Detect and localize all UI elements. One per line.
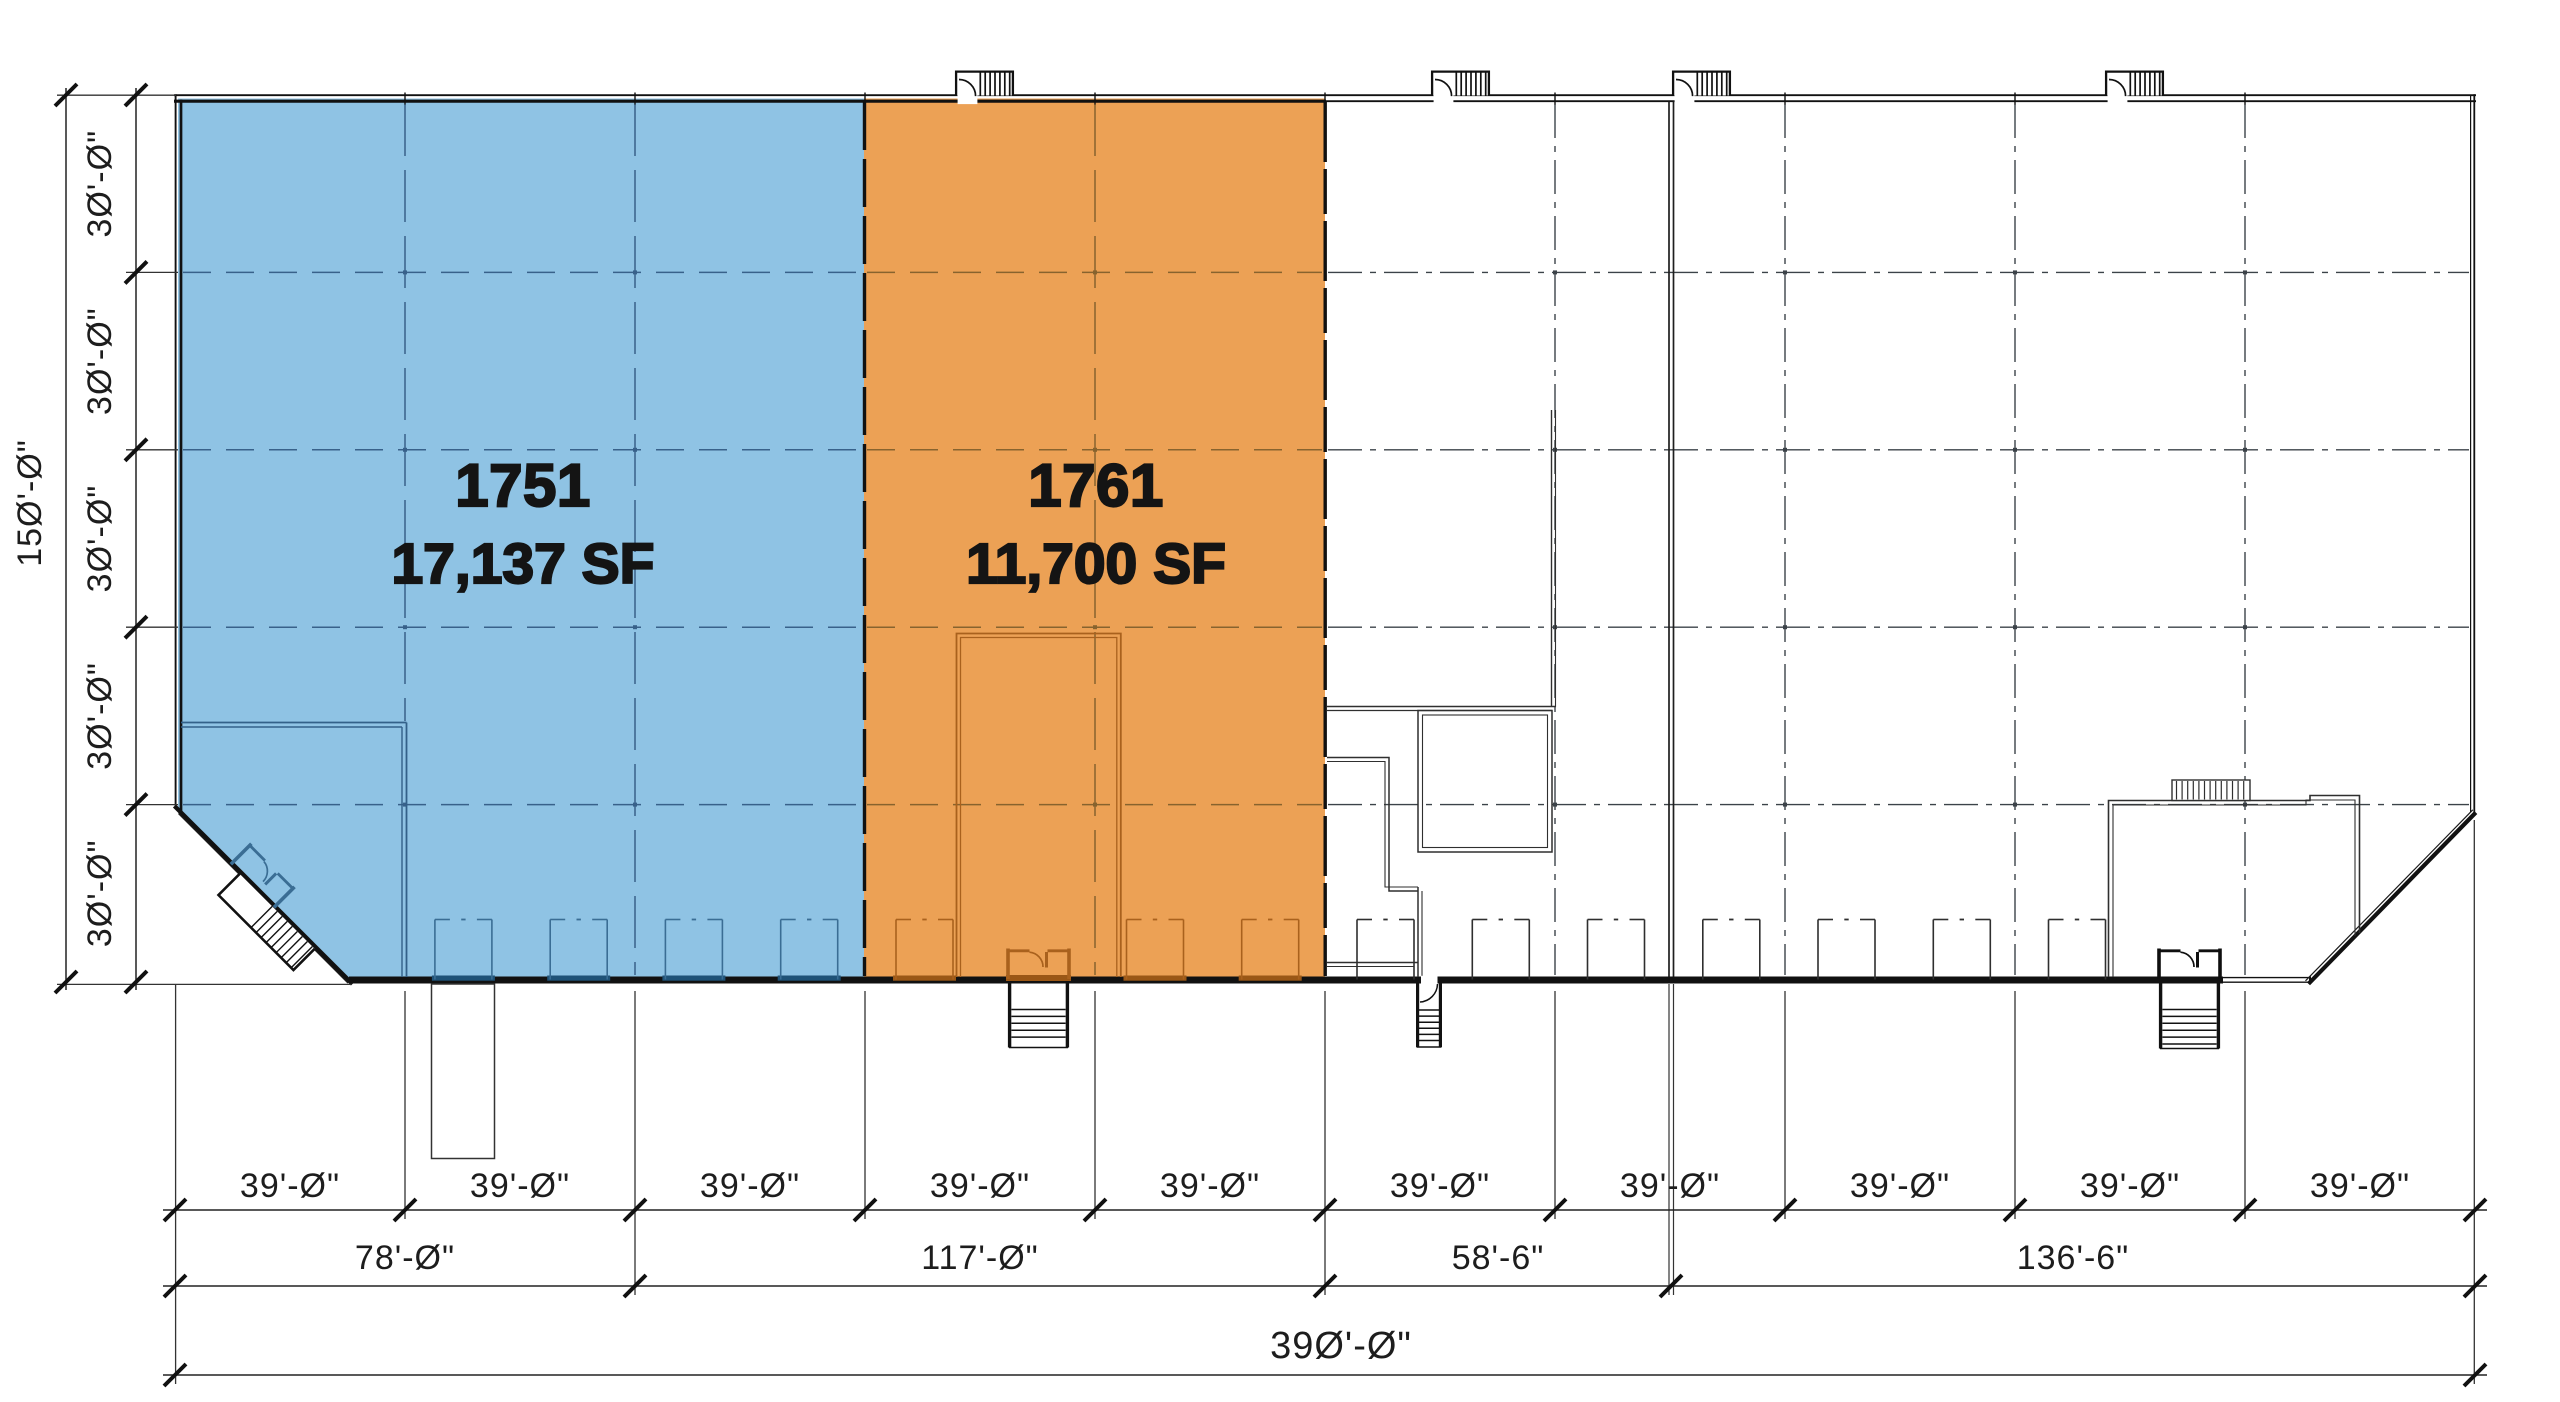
svg-text:3Ø'-Ø": 3Ø'-Ø" [81,662,119,770]
svg-text:39'-Ø": 39'-Ø" [1390,1167,1490,1205]
svg-text:39'-Ø": 39'-Ø" [470,1167,570,1205]
svg-text:1751: 1751 [455,452,590,519]
svg-text:39'-Ø": 39'-Ø" [930,1167,1030,1205]
svg-text:3Ø'-Ø": 3Ø'-Ø" [81,307,119,415]
svg-text:39'-Ø": 39'-Ø" [2080,1167,2180,1205]
svg-text:39'-Ø": 39'-Ø" [240,1167,340,1205]
svg-text:58'-6": 58'-6" [1452,1239,1545,1277]
svg-text:117'-Ø": 117'-Ø" [921,1239,1039,1277]
svg-text:39'-Ø": 39'-Ø" [1620,1167,1720,1205]
svg-text:39'-Ø": 39'-Ø" [1160,1167,1260,1205]
svg-text:11,700 SF: 11,700 SF [966,532,1226,596]
svg-text:78'-Ø": 78'-Ø" [355,1239,455,1277]
svg-text:1761: 1761 [1028,452,1163,519]
svg-text:3Ø'-Ø": 3Ø'-Ø" [81,839,119,947]
svg-text:39'-Ø": 39'-Ø" [700,1167,800,1205]
svg-text:136'-6": 136'-6" [2017,1239,2130,1277]
svg-text:3Ø'-Ø": 3Ø'-Ø" [81,485,119,593]
svg-text:15Ø'-Ø": 15Ø'-Ø" [11,439,49,567]
svg-text:39Ø'-Ø": 39Ø'-Ø" [1270,1325,1412,1367]
svg-text:3Ø'-Ø": 3Ø'-Ø" [81,130,119,238]
svg-text:39'-Ø": 39'-Ø" [2310,1167,2410,1205]
svg-text:17,137 SF: 17,137 SF [391,532,654,596]
svg-text:39'-Ø": 39'-Ø" [1850,1167,1950,1205]
